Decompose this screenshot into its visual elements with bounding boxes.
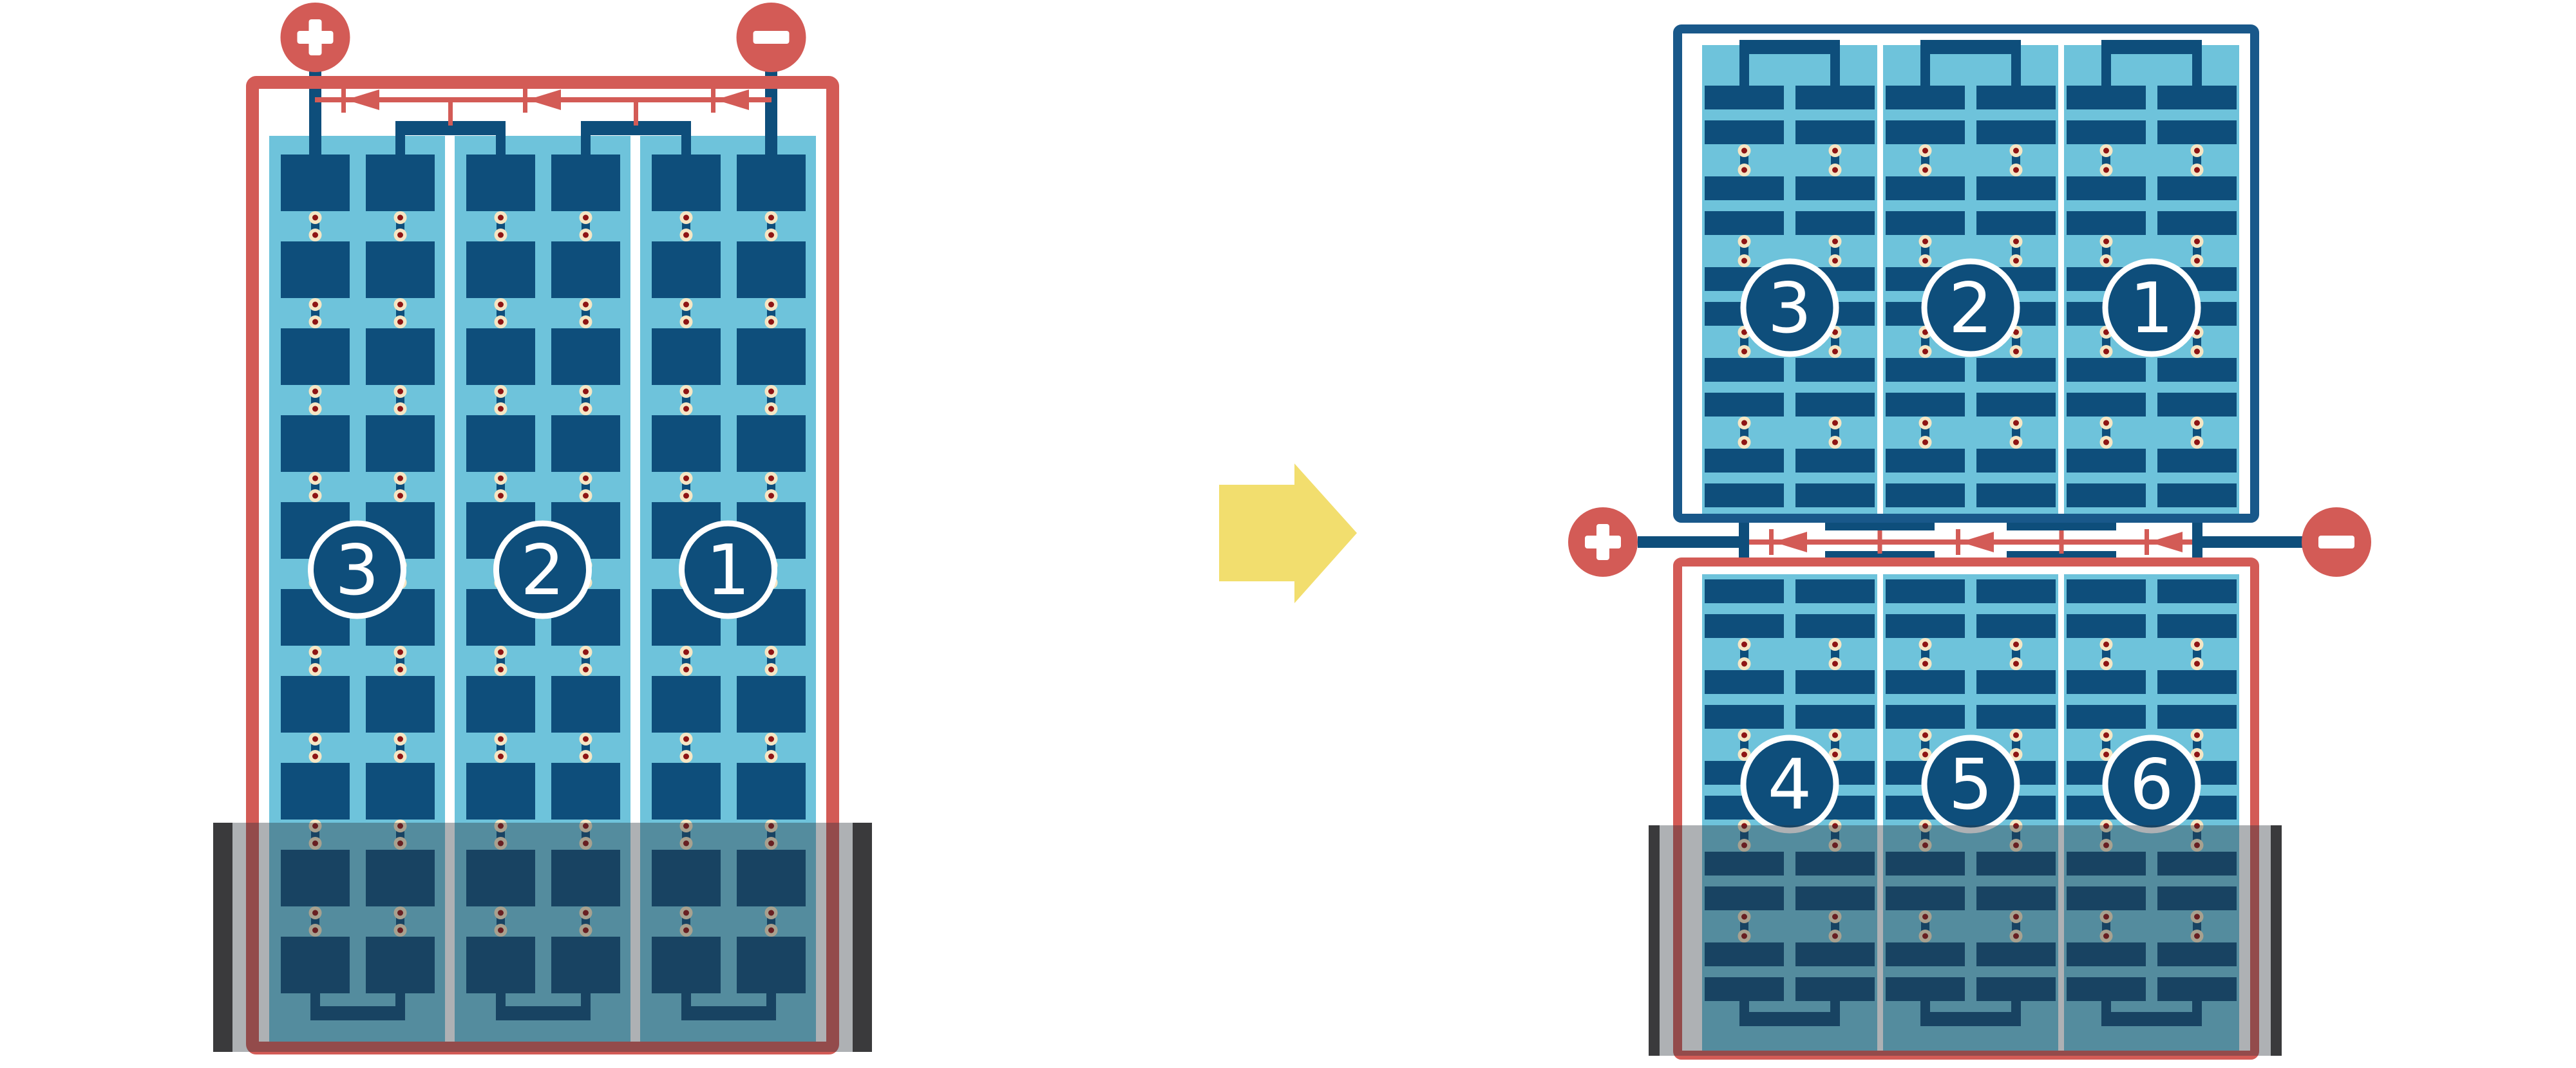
string-badge: 1 — [682, 523, 775, 616]
string-badge: 1 — [2105, 261, 2198, 354]
string-number: 2 — [520, 530, 565, 611]
module-after-top: 3 2 1 — [1678, 29, 2255, 518]
string-badge: 3 — [1743, 261, 1836, 354]
positive-lead — [1638, 536, 1747, 548]
bus-stub — [2060, 530, 2064, 554]
flood-edge-bar — [2271, 825, 2282, 1056]
string-number: 4 — [1768, 745, 1812, 825]
flood-edge-bar — [1649, 825, 1660, 1056]
transition-arrow-icon — [1219, 464, 1357, 603]
pv-module-flood-diagram: 3 2 1 3 2 — [0, 0, 2576, 1068]
bus-stub — [1878, 530, 1882, 554]
string-number: 1 — [706, 530, 750, 611]
negative-terminal — [737, 3, 806, 72]
string-badge: 5 — [1924, 738, 2017, 830]
flood-water-overlay — [1649, 825, 2282, 1056]
flood-edge-bar — [853, 823, 872, 1052]
flood-water-overlay — [213, 823, 872, 1052]
string-number: 6 — [2130, 745, 2174, 825]
positive-terminal — [281, 3, 350, 72]
negative-lead — [2193, 536, 2303, 548]
positive-terminal — [1568, 507, 1638, 577]
string-number: 2 — [1949, 268, 1993, 349]
negative-terminal — [2302, 507, 2371, 577]
string-separator — [1877, 45, 1883, 514]
string-badge: 3 — [311, 523, 404, 616]
string-number: 3 — [335, 530, 379, 611]
flood-water-right — [1649, 825, 2282, 1056]
string-number: 5 — [1949, 745, 1993, 825]
bypass-diode-bus — [315, 87, 772, 126]
interconnect-tab — [1825, 523, 1935, 530]
interconnect-tab — [2007, 523, 2116, 530]
string-badge: 6 — [2105, 738, 2198, 830]
diagram-canvas: 3 2 1 3 2 — [0, 0, 2576, 1068]
string-number: 1 — [2130, 268, 2174, 349]
string-badge: 2 — [1924, 261, 2017, 354]
string-separator — [2058, 45, 2064, 514]
flood-water-left — [213, 823, 872, 1052]
string-badge: 2 — [497, 523, 589, 616]
string-badge: 4 — [1743, 738, 1836, 830]
string-number: 3 — [1768, 268, 1812, 349]
flood-edge-bar — [213, 823, 232, 1052]
